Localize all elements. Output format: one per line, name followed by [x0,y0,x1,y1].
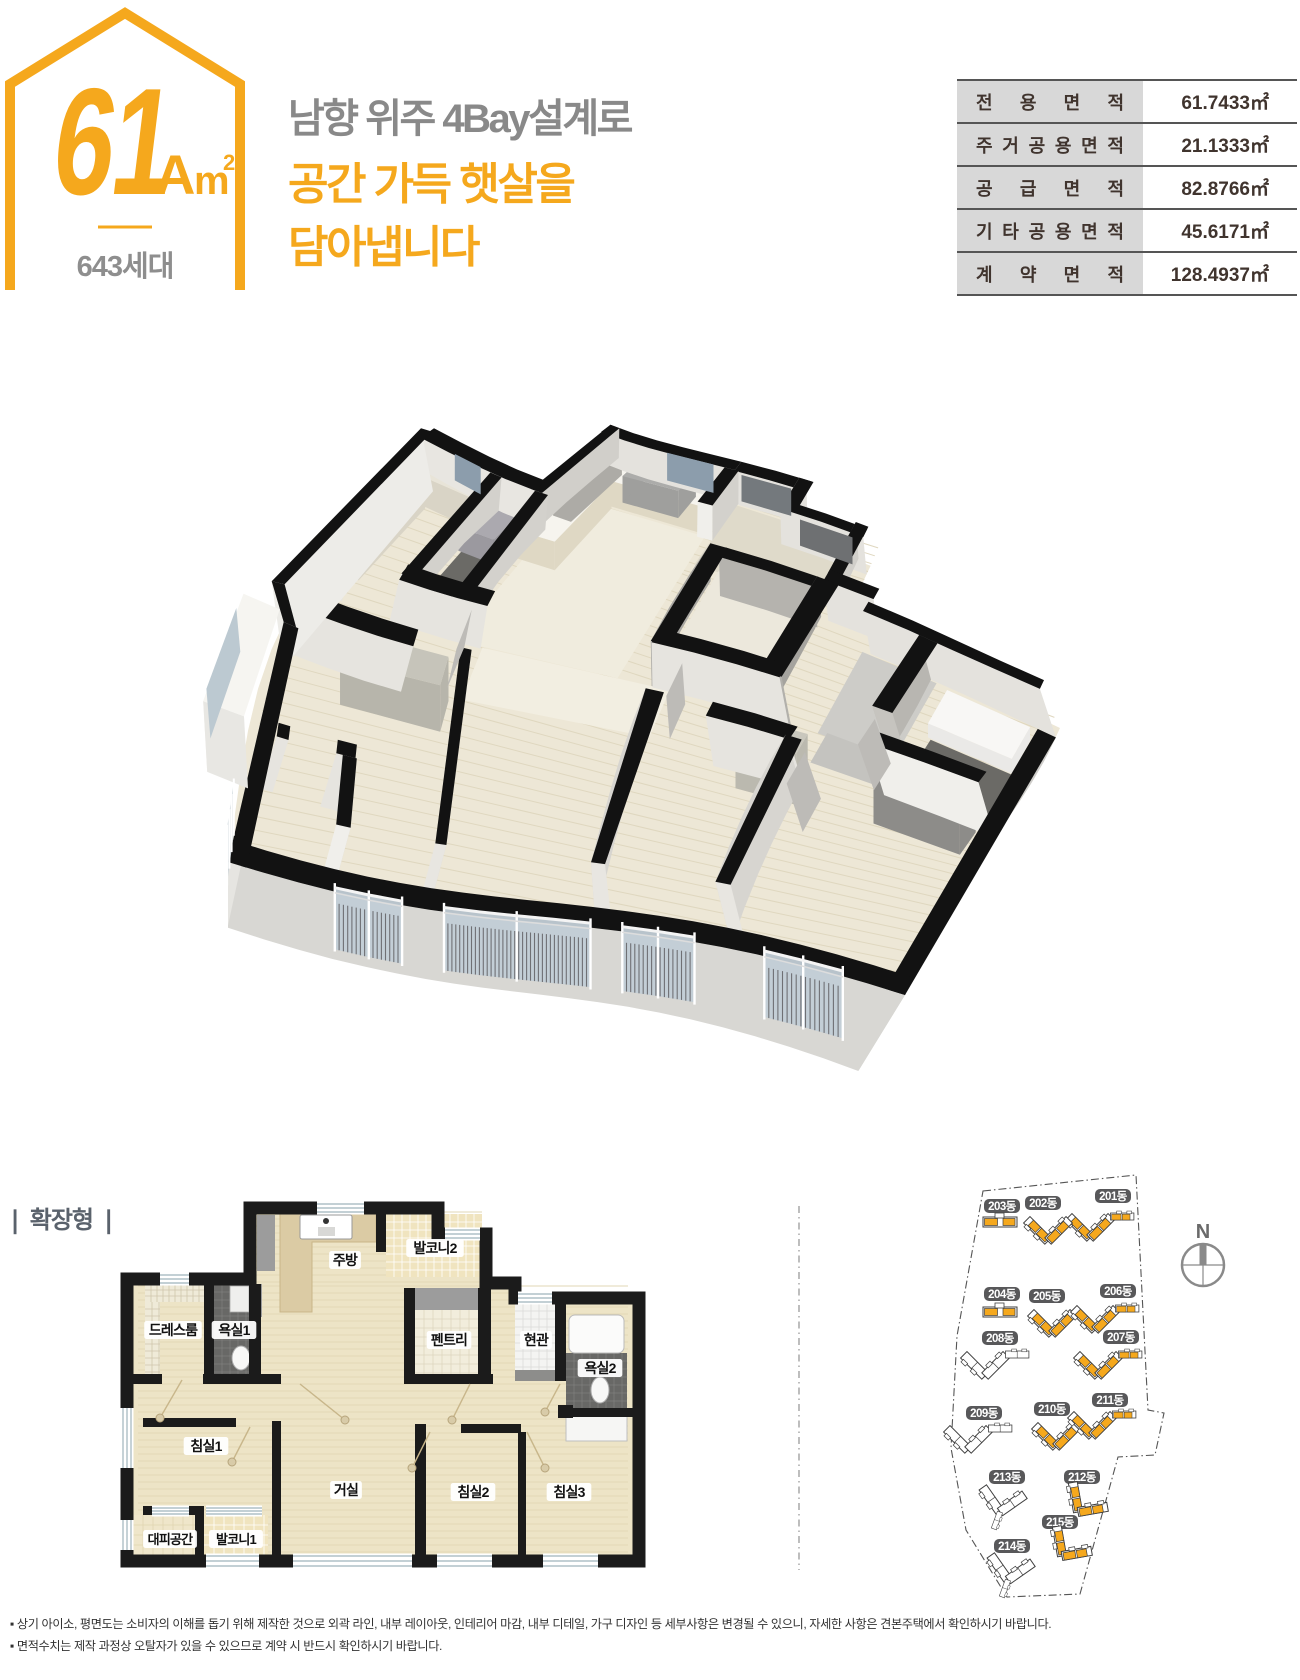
svg-text:N: N [1196,1221,1210,1243]
svg-text:209동: 209동 [970,1407,999,1420]
svg-text:201동: 201동 [1099,1190,1128,1203]
svg-text:207동: 207동 [1107,1331,1136,1344]
svg-text:213동: 213동 [993,1471,1022,1484]
svg-text:208동: 208동 [986,1332,1015,1345]
svg-text:204동: 204동 [988,1288,1017,1301]
svg-text:202동: 202동 [1029,1197,1058,1210]
svg-text:210동: 210동 [1038,1403,1067,1416]
svg-text:205동: 205동 [1033,1290,1062,1303]
svg-text:203동: 203동 [988,1200,1017,1213]
svg-text:214동: 214동 [998,1540,1027,1553]
svg-text:206동: 206동 [1104,1285,1133,1298]
svg-text:211동: 211동 [1096,1394,1124,1407]
